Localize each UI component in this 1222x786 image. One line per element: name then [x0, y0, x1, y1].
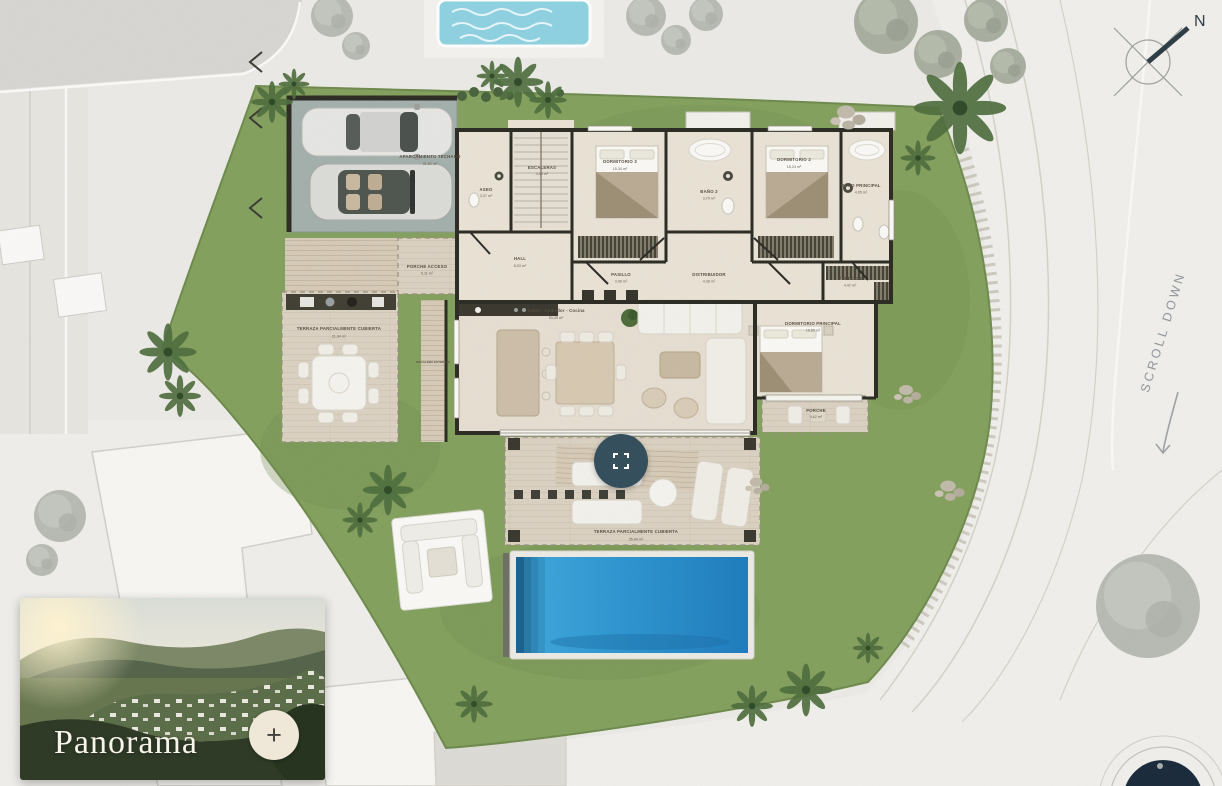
fullscreen-icon — [610, 450, 632, 472]
panorama-card[interactable]: Panorama + — [20, 598, 325, 780]
expand-button[interactable] — [594, 434, 648, 488]
scroll-down-label: SCROLL DOWN — [1138, 270, 1188, 394]
plus-icon: + — [266, 722, 282, 749]
panorama-title: Panorama — [54, 724, 198, 762]
panorama-expand-button[interactable]: + — [249, 710, 299, 760]
floor-plan-viewer: APARCAMIENTO TECHADO 31,61 m² ASEO 3,37 … — [0, 0, 1222, 786]
